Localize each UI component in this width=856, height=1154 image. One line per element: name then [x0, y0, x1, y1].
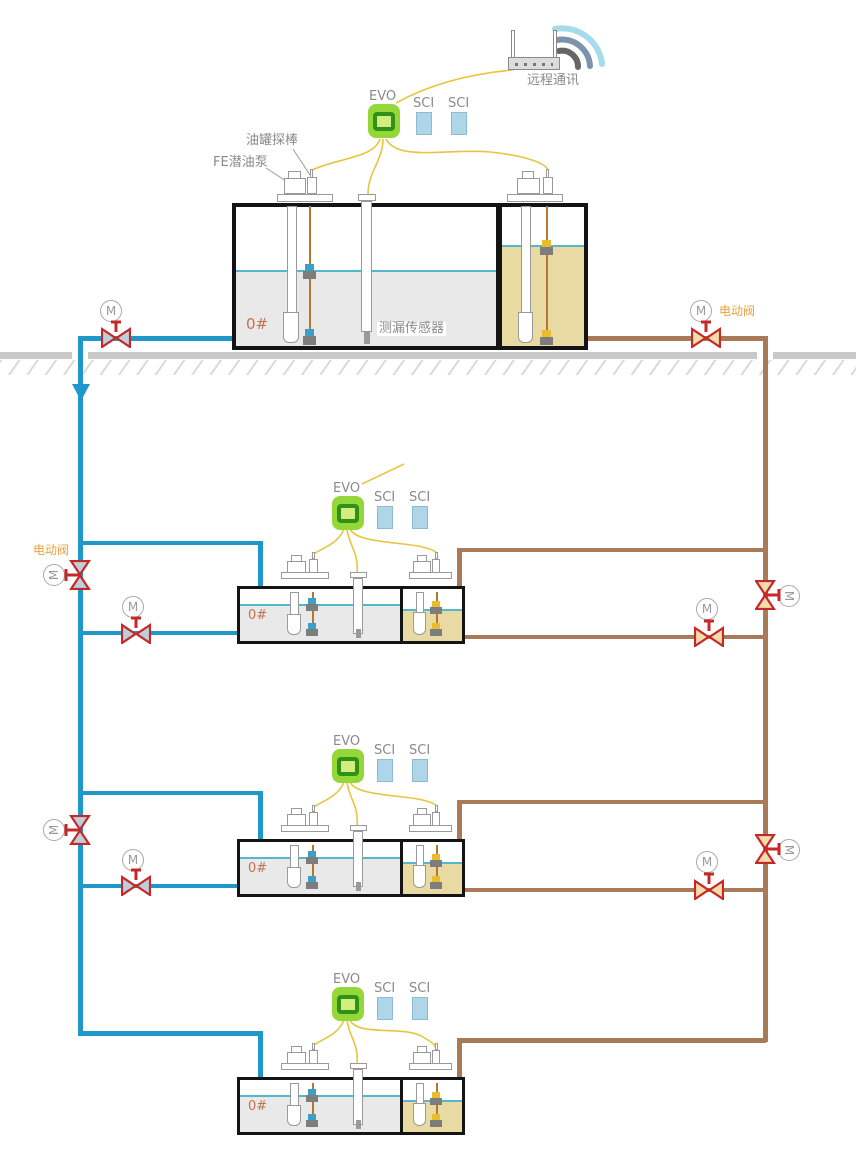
motor-valve-row2-riser-right [755, 580, 783, 614]
submersible-pump [518, 312, 533, 343]
pipe-brown-riser [763, 336, 768, 1042]
sci-label-row2-2: SCI [409, 491, 430, 504]
wire-row3-right-probe [350, 782, 436, 805]
sci-module-row3-1 [377, 759, 393, 782]
motor-indicator: M [122, 596, 144, 618]
float-stop [430, 882, 442, 889]
sci-module-top-1 [416, 112, 432, 135]
evo-console-row2 [332, 496, 364, 530]
submersible-pump [287, 614, 301, 635]
float-stop [306, 629, 318, 636]
tank-probe-label: 油罐探棒 [246, 134, 298, 147]
fe-pump-head [517, 178, 540, 194]
probe-pin [312, 805, 315, 812]
submersible-pump [287, 867, 301, 888]
sci-label-row3-2: SCI [409, 744, 430, 757]
tank-probe-head [432, 812, 440, 826]
fe-pump-head [413, 1052, 431, 1064]
submersible-pump [413, 1103, 426, 1126]
sci-module-row2-2 [412, 506, 428, 529]
sci-label-top-1: SCI [413, 97, 434, 110]
leader-fe-pump [266, 168, 286, 181]
tank-probe-head [309, 1050, 318, 1064]
tank-probe-head [309, 812, 318, 826]
motor-valve-top-right [691, 320, 721, 352]
evo-screen [373, 112, 395, 131]
float-stop [430, 1120, 442, 1127]
sci-label-row2-1: SCI [374, 491, 395, 504]
float-stop [306, 857, 318, 864]
manhole-flange [409, 572, 452, 579]
probe-pin [435, 552, 438, 559]
fe-pump-head [284, 178, 306, 194]
router-antenna-left [511, 30, 515, 58]
pipe-brown-row3-fill-branch [460, 800, 768, 804]
wire-row2-leak-sensor [347, 529, 357, 574]
fuel-grade-label-3: 0# [248, 862, 267, 875]
wire-row4-left-probe [314, 1020, 344, 1045]
float-switch [542, 240, 551, 247]
fe-pump-head [287, 814, 306, 826]
float-stop [306, 604, 318, 611]
probe-pin [435, 805, 438, 812]
float-switch [305, 329, 314, 336]
motor-valve-row3-riser-left [62, 815, 92, 849]
wire-row4-leak-sensor [347, 1020, 357, 1065]
float-switch [542, 330, 551, 337]
evo-console-top [368, 104, 400, 138]
motor-valve-top-left [101, 320, 131, 352]
leak-sensor-tube [353, 1069, 363, 1125]
tank-probe-head [543, 177, 553, 194]
leak-sensor-label: 测漏传感器 [377, 322, 446, 336]
electric-valve-label-row2: 电动阀 [33, 544, 69, 556]
ground-line [0, 352, 856, 359]
manhole-flange [409, 1063, 452, 1070]
pipe-blue-row4-branch [80, 1031, 263, 1036]
router-leds [515, 63, 553, 66]
wifi-arc-middle-icon [557, 40, 590, 66]
manhole-flange [277, 194, 333, 202]
tank-probe-head [432, 559, 440, 573]
pump-column [287, 206, 297, 313]
float-stop [430, 1098, 442, 1105]
motor-valve-row2-riser-left [62, 560, 92, 594]
fe-pump-head [413, 561, 431, 573]
submersible-pump [413, 865, 426, 888]
wifi-arc-inner-icon [559, 51, 578, 67]
manhole-flange [281, 1063, 329, 1070]
wire-evo-to-right-probe [386, 139, 548, 170]
wire-row3-left-probe [314, 782, 344, 807]
sci-label-top-2: SCI [448, 97, 469, 110]
leak-sensor-cap [358, 194, 376, 201]
probe-pin [312, 552, 315, 559]
motor-valve-row2-suction-right [694, 619, 724, 651]
pipe-blue-row2-suction-branch [80, 631, 237, 635]
wire-evo-to-leak-sensor [368, 139, 383, 194]
evo-label-row2: EVO [333, 482, 360, 495]
fe-pump-head [287, 1052, 306, 1064]
probe-rod [546, 206, 548, 345]
float-stop [306, 1095, 318, 1102]
probe-pin [312, 1043, 315, 1050]
motor-indicator: M [696, 598, 718, 620]
submersible-pump [287, 1105, 301, 1126]
tank-row3-left-compartment: 0# [237, 839, 403, 897]
router-icon [508, 57, 560, 70]
sci-module-row4-2 [412, 997, 428, 1020]
float-switch [305, 264, 314, 271]
pipe-blue-riser [78, 336, 83, 1036]
wifi-arc-outer-icon [555, 28, 602, 64]
leak-sensor-tube [353, 578, 363, 634]
pipe-blue-row3-fill-branch [80, 791, 260, 795]
wire-evo-to-left-probe [312, 139, 380, 170]
ground-hatching [0, 360, 856, 375]
wire-row2-right-probe [350, 529, 436, 552]
pipe-blue-row3-suction-branch [80, 884, 237, 888]
fe-pump-head [287, 561, 306, 573]
leak-sensor-tube [361, 201, 372, 332]
pipe-brown-row2-fill-branch [460, 548, 768, 552]
motor-valve-row3-riser-right [755, 834, 783, 868]
float-stop [430, 607, 442, 614]
motor-indicator: M [100, 300, 122, 322]
pipe-brown-row4-branch [460, 1038, 766, 1043]
fe-pump-head [413, 814, 431, 826]
sci-module-row4-1 [377, 997, 393, 1020]
tank-probe-head [432, 1050, 440, 1064]
electric-valve-label-top: 电动阀 [719, 305, 755, 317]
pump-column [521, 206, 531, 313]
manhole-flange [281, 825, 329, 832]
leak-sensor-tip [356, 629, 361, 638]
float-stop [430, 629, 442, 636]
sci-label-row4-2: SCI [409, 982, 430, 995]
float-stop [430, 860, 442, 867]
fuel-grade-label-2: 0# [248, 609, 267, 622]
evo-console-row4 [332, 987, 364, 1021]
evo-label-row4: EVO [333, 973, 360, 986]
evo-label-row3: EVO [333, 735, 360, 748]
float-stop [303, 336, 316, 345]
motor-valve-row3-suction-right [694, 872, 724, 904]
fuel-grade-label-4: 0# [248, 1100, 267, 1113]
submersible-pump [283, 312, 299, 343]
manhole-flange [507, 194, 563, 202]
submersible-pump [413, 612, 426, 635]
float-stop [306, 1120, 318, 1127]
pipe-brown-top-horizontal [588, 336, 766, 341]
manhole-flange [409, 825, 452, 832]
motor-indicator: M [696, 851, 718, 873]
leak-sensor-tube [353, 831, 363, 887]
tank-row2-left-compartment: 0# [237, 586, 403, 644]
wire-row2-left-probe [314, 529, 344, 554]
evo-screen [337, 995, 359, 1014]
sci-module-row2-1 [377, 506, 393, 529]
float-stop [306, 882, 318, 889]
float-stop [540, 247, 553, 255]
evo-console-row3 [332, 749, 364, 783]
fe-pump-label: FE潜油泵 [213, 156, 268, 169]
sci-module-row3-2 [412, 759, 428, 782]
flow-arrow-down-icon [72, 384, 90, 401]
router-antenna-right [553, 30, 557, 58]
wire-row3-leak-sensor [347, 782, 357, 827]
fuel-station-monitoring-diagram: 远程通讯 EVO SCI SCI 油罐探棒 FE潜油泵 0# 测漏传感器 [0, 0, 856, 1154]
motor-valve-row2-suction-left [121, 616, 151, 648]
manhole-flange [281, 572, 329, 579]
evo-screen [337, 757, 359, 776]
sci-label-row3-1: SCI [374, 744, 395, 757]
evo-label-top: EVO [369, 90, 396, 103]
tank-row4-left-compartment: 0# [237, 1077, 403, 1135]
float-stop [303, 271, 316, 279]
evo-screen [337, 504, 359, 523]
pipe-blue-row2-fill-branch [80, 541, 260, 545]
motor-indicator: M [690, 300, 712, 322]
fuel-grade-label-1: 0# [246, 317, 268, 332]
remote-comm-label: 远程通讯 [527, 74, 579, 87]
leak-sensor-tip [356, 1120, 361, 1129]
float-stop [540, 337, 553, 345]
tank-probe-head [307, 177, 317, 194]
tank-probe-head [309, 559, 318, 573]
motor-valve-row3-suction-left [121, 868, 151, 900]
leak-sensor-tip [364, 332, 370, 344]
sci-module-top-2 [451, 112, 467, 135]
sci-label-row4-1: SCI [374, 982, 395, 995]
wire-row2-uplink [362, 464, 404, 484]
tank-top-right-compartment [498, 203, 588, 350]
probe-pin [435, 1043, 438, 1050]
leak-sensor-tip [356, 882, 361, 891]
